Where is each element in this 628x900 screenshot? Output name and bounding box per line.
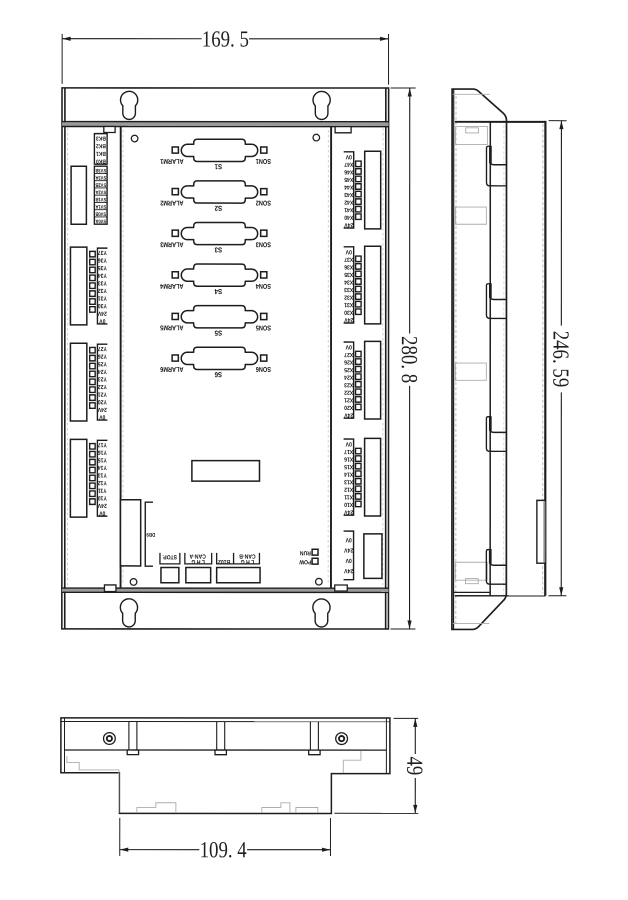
svg-text:24V: 24V: [344, 221, 353, 228]
svg-text:X36: X36: [344, 263, 354, 270]
svg-text:X14: X14: [344, 471, 354, 478]
svg-text:ALARM3: ALARM3: [160, 240, 183, 247]
svg-text:S5: S5: [215, 329, 222, 338]
svg-text:24V: 24V: [344, 567, 353, 574]
svg-text:X15: X15: [344, 463, 354, 470]
svg-text:POW: POW: [299, 558, 311, 565]
svg-text:SON3: SON3: [256, 240, 271, 247]
svg-text:109. 4: 109. 4: [200, 837, 248, 862]
svg-text:SV0A: SV0A: [95, 218, 106, 224]
svg-text:X32: X32: [344, 294, 354, 301]
svg-text:SV3B: SV3B: [95, 167, 106, 173]
svg-text:X20: X20: [344, 404, 354, 411]
svg-text:X16: X16: [344, 456, 354, 463]
svg-text:SON5: SON5: [256, 324, 271, 331]
svg-text:SV0B: SV0B: [95, 210, 106, 216]
svg-text:Y24: Y24: [97, 368, 107, 375]
svg-text:X33: X33: [344, 286, 354, 293]
svg-text:ALARM2: ALARM2: [160, 199, 183, 206]
svg-text:BK2: BK2: [96, 142, 106, 149]
svg-text:Y27: Y27: [97, 345, 107, 352]
svg-text:Y35: Y35: [97, 264, 107, 271]
svg-text:Y20: Y20: [97, 398, 107, 405]
svg-text:X31: X31: [344, 301, 354, 308]
svg-text:Y17: Y17: [97, 441, 107, 448]
svg-text:Y31: Y31: [97, 295, 107, 302]
svg-text:Y36: Y36: [97, 257, 107, 264]
svg-text:SV1A: SV1A: [95, 203, 106, 209]
svg-text:STOP.: STOP.: [162, 553, 177, 560]
svg-text:X37: X37: [344, 256, 354, 263]
svg-text:ALARM4: ALARM4: [160, 282, 183, 289]
svg-text:169. 5: 169. 5: [202, 26, 249, 51]
svg-text:X21: X21: [344, 396, 354, 403]
svg-text:Y16: Y16: [97, 449, 107, 456]
svg-text:S3: S3: [215, 245, 222, 254]
svg-text:0V: 0V: [346, 153, 352, 160]
svg-text:Y12: Y12: [97, 479, 107, 486]
svg-text:X45: X45: [344, 176, 354, 183]
svg-text:RUN: RUN: [300, 549, 311, 556]
svg-text:ALARM5: ALARM5: [160, 324, 183, 331]
svg-text:X43: X43: [344, 191, 354, 198]
svg-text:0V: 0V: [99, 510, 105, 517]
svg-text:X22: X22: [344, 389, 354, 396]
svg-text:0V: 0V: [99, 413, 105, 420]
svg-text:L H G: L H G: [240, 558, 254, 565]
svg-text:X46: X46: [344, 168, 354, 175]
svg-text:X47: X47: [344, 161, 354, 168]
svg-text:X34: X34: [344, 278, 354, 285]
svg-text:SV3A: SV3A: [95, 174, 106, 180]
svg-text:SON6: SON6: [256, 365, 271, 372]
svg-text:X42: X42: [344, 199, 354, 206]
svg-text:Y25: Y25: [97, 360, 107, 367]
svg-text:X23: X23: [344, 381, 354, 388]
svg-text:Y15: Y15: [97, 456, 107, 463]
svg-text:SV2A: SV2A: [95, 189, 106, 195]
svg-text:X41: X41: [344, 206, 354, 213]
svg-text:Y32: Y32: [97, 287, 107, 294]
svg-text:Y26: Y26: [97, 353, 107, 360]
svg-text:X13: X13: [344, 478, 354, 485]
svg-text:S2: S2: [215, 204, 222, 213]
svg-text:BK1: BK1: [95, 150, 106, 156]
svg-text:X17: X17: [344, 448, 354, 455]
svg-text:246. 59: 246. 59: [548, 331, 573, 388]
svg-text:24V: 24V: [98, 502, 107, 509]
svg-text:Y34: Y34: [97, 272, 107, 279]
svg-text:ALARM6: ALARM6: [160, 365, 183, 372]
svg-text:280. 8: 280. 8: [397, 336, 422, 383]
svg-text:0V: 0V: [346, 440, 352, 447]
svg-text:49: 49: [402, 757, 427, 776]
svg-text:Y33: Y33: [97, 279, 107, 286]
svg-text:Y22: Y22: [97, 383, 107, 390]
svg-text:24V: 24V: [344, 411, 353, 418]
svg-text:0V: 0V: [99, 317, 105, 324]
svg-text:Y13: Y13: [97, 472, 107, 479]
svg-text:X30: X30: [344, 309, 354, 316]
svg-text:X25: X25: [344, 366, 354, 373]
svg-text:L H G: L H G: [191, 558, 205, 565]
svg-text:0V: 0V: [346, 248, 352, 255]
svg-text:X40: X40: [344, 214, 354, 221]
svg-text:Y30: Y30: [97, 302, 107, 309]
svg-text:0V: 0V: [346, 557, 352, 564]
svg-text:BK3: BK3: [95, 135, 106, 142]
svg-text:SON4: SON4: [256, 282, 271, 289]
svg-text:X26: X26: [344, 359, 354, 366]
svg-text:X35: X35: [344, 271, 354, 278]
svg-text:0V: 0V: [346, 343, 352, 350]
svg-text:SON1: SON1: [256, 157, 271, 164]
svg-text:S6: S6: [215, 370, 222, 379]
svg-text:X27: X27: [344, 351, 354, 358]
svg-text:B102: B102: [218, 558, 231, 565]
svg-text:X24: X24: [344, 374, 354, 381]
svg-text:SV1B: SV1B: [95, 196, 106, 202]
svg-text:Y23: Y23: [97, 375, 107, 382]
svg-text:Y37: Y37: [97, 249, 107, 256]
svg-text:24V: 24V: [98, 406, 107, 413]
svg-text:ALARM1: ALARM1: [160, 157, 183, 164]
svg-text:X10: X10: [344, 501, 354, 508]
svg-text:X44: X44: [344, 183, 354, 190]
svg-text:24V: 24V: [98, 310, 107, 317]
svg-text:SV2B: SV2B: [95, 181, 106, 187]
svg-text:24V: 24V: [344, 508, 353, 515]
svg-text:X12: X12: [344, 486, 354, 493]
svg-text:SON2: SON2: [256, 199, 271, 206]
svg-text:S4: S4: [215, 287, 222, 296]
svg-text:X11: X11: [344, 493, 353, 500]
svg-text:24V: 24V: [344, 547, 353, 554]
svg-text:0V: 0V: [346, 536, 352, 543]
svg-text:S1: S1: [215, 162, 222, 171]
svg-text:24V: 24V: [344, 316, 353, 323]
svg-text:DB9: DB9: [146, 531, 155, 537]
svg-text:Y11: Y11: [97, 487, 106, 494]
svg-text:Y21: Y21: [97, 391, 107, 398]
svg-text:BK0: BK0: [96, 158, 106, 165]
svg-text:Y10: Y10: [97, 494, 107, 501]
svg-text:Y14: Y14: [97, 464, 107, 471]
